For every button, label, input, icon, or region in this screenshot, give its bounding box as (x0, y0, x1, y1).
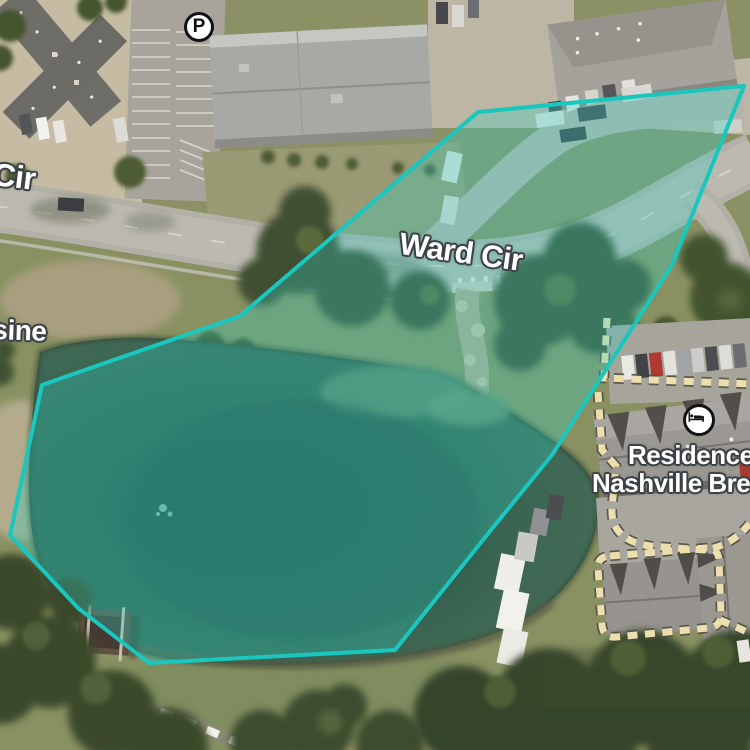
poi-label-partial: sine (0, 314, 47, 348)
parking-icon[interactable]: P (184, 12, 214, 42)
lodging-poi[interactable] (683, 404, 715, 436)
road-label-cir-partial: Cir (0, 156, 38, 198)
hotel-label-line1: Residence I (628, 440, 750, 471)
selected-area-polygon[interactable] (10, 86, 744, 663)
satellite-map-view: P Ward Cir Cir sine Residence I Nashvill… (0, 0, 750, 750)
bed-icon (686, 407, 706, 427)
hotel-label-line2: Nashville Brent (592, 468, 750, 499)
parking-icon-letter: P (193, 16, 206, 38)
selection-overlay (0, 0, 750, 750)
